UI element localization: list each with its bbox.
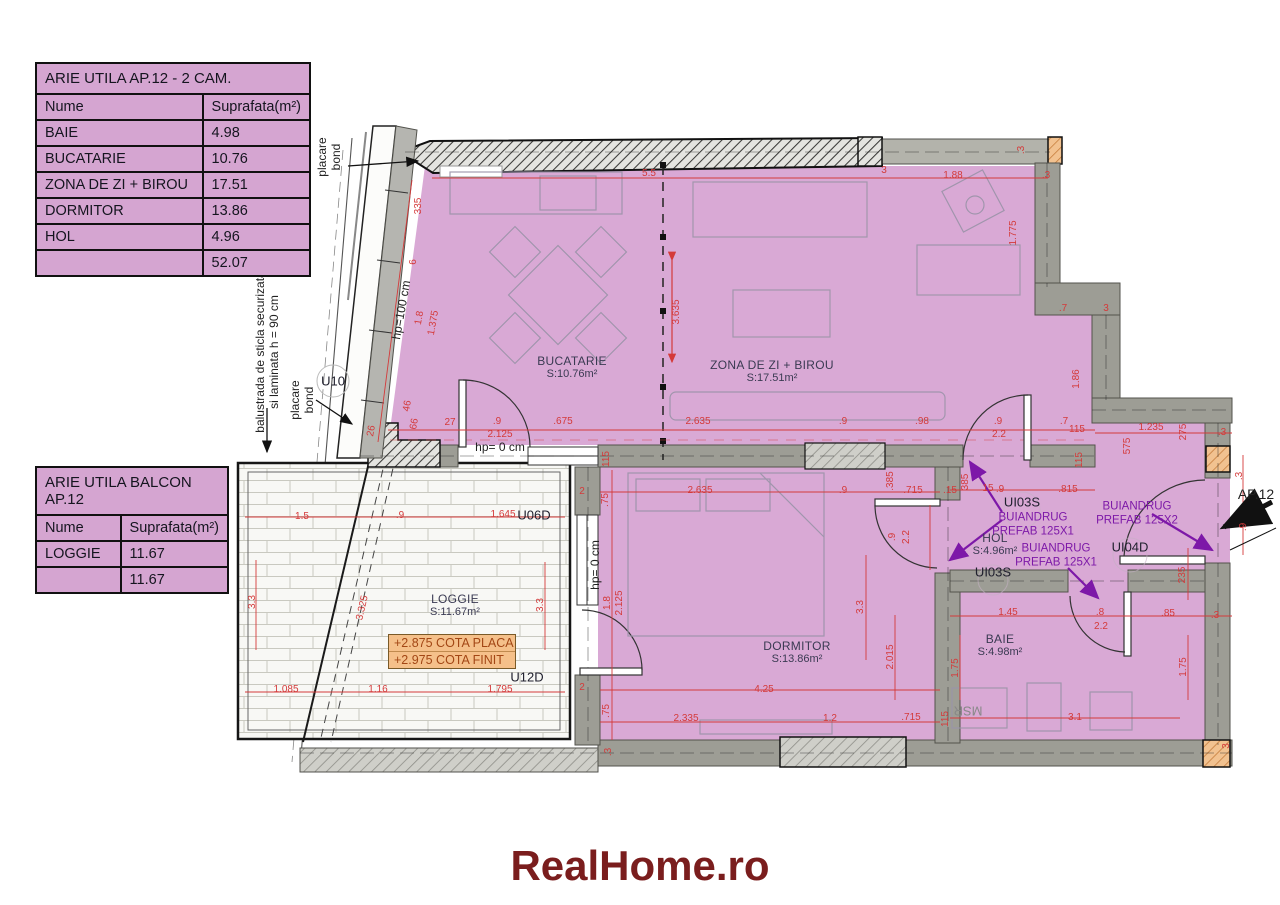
dimension-label: .9: [994, 417, 1002, 427]
hp0-kitchen-note: hp= 0 cm: [475, 441, 525, 455]
dimension-label: .98: [915, 417, 929, 427]
dimension-label: 1.75: [1179, 657, 1189, 676]
room-name: HOL: [36, 224, 203, 250]
room-name: ZONA DE ZI + BIROU: [36, 172, 203, 198]
dimension-label: 115: [602, 451, 612, 467]
table-title: ARIE UTILA BALCON AP.12: [36, 467, 228, 515]
dimension-label: .3: [1042, 171, 1050, 181]
dimension-label: .75: [601, 493, 611, 507]
dimension-label: 2.2: [1094, 622, 1108, 632]
table-row: LOGGIE11.67: [36, 541, 228, 567]
room-area: 17.51: [203, 172, 310, 198]
dimension-label: .85: [1161, 609, 1175, 619]
dimension-label: 115: [1075, 452, 1085, 468]
table-total-row: 52.07: [36, 250, 310, 276]
dimension-label: .3: [604, 748, 614, 756]
dimension-label: .15: [943, 486, 957, 496]
dimension-label: 2: [579, 683, 585, 693]
room-name: DORMITOR: [36, 198, 203, 224]
dimension-label: 2.125: [615, 590, 625, 615]
msr-label: MSR: [954, 703, 983, 718]
door-label: U12D: [510, 670, 543, 685]
lintel-note: BUIANDRUGPREFAB 125X2: [1096, 500, 1178, 529]
dimension-label: 3.635: [672, 299, 682, 324]
dimension-label: 1.775: [1009, 220, 1019, 245]
dimension-label: 1.5: [295, 512, 309, 522]
dimension-label: 115: [1069, 425, 1085, 435]
room-name: BAIE: [978, 632, 1023, 646]
dimension-label: 2.2: [902, 530, 912, 544]
empty-cell: [36, 567, 121, 593]
room-name: LOGGIE: [36, 541, 121, 567]
room-area: S:11.67m²: [430, 606, 480, 618]
table-row: DORMITOR13.86: [36, 198, 310, 224]
dimension-label: 27: [444, 418, 455, 428]
room-area: S:4.96m²: [973, 545, 1018, 557]
lintel-note: BUIANDRUGPREFAB 125X1: [1015, 542, 1097, 571]
room-area: 11.67: [121, 541, 228, 567]
dimension-label: 1.2: [823, 714, 837, 724]
column-header-area: Suprafata(m²): [121, 515, 228, 541]
room-area: 10.76: [203, 146, 310, 172]
room-name: BUCATARIE: [537, 354, 607, 368]
table-total-row: 11.67: [36, 567, 228, 593]
lintel-note: BUIANDRUGPREFAB 125X1: [992, 511, 1074, 540]
dimension-label: 385: [961, 474, 971, 491]
dimension-label: 2.635: [685, 417, 710, 427]
dimension-label: .7: [1060, 417, 1068, 427]
cota-placa: +2.875 COTA PLACA: [389, 635, 515, 652]
elevation-note: +2.875 COTA PLACA +2.975 COTA FINIT: [388, 634, 516, 669]
dimension-label: 1.88: [943, 171, 962, 181]
table-row: ZONA DE ZI + BIROU17.51: [36, 172, 310, 198]
room-name: BUCATARIE: [36, 146, 203, 172]
table-row: HOL4.96: [36, 224, 310, 250]
balustrade-note-line2: si laminata h = 90 cm: [268, 271, 282, 432]
door-label: U10: [321, 374, 345, 389]
dimension-label: 3: [1222, 743, 1232, 749]
dimension-label: 1.645: [490, 510, 515, 520]
dimension-label: 2.015: [886, 644, 896, 669]
balcony-area-table: ARIE UTILA BALCON AP.12 Nume Suprafata(m…: [35, 466, 229, 594]
dimension-label: 3.1: [1068, 713, 1082, 723]
hp0-bedroom-note: hp= 0 cm: [589, 540, 603, 590]
dimension-label: 1.085: [273, 685, 298, 695]
room-area: S:4.98m²: [978, 646, 1023, 658]
dimension-label: 3.3: [536, 598, 546, 612]
dimension-label: 1.795: [487, 685, 512, 695]
door-label: UI04D: [1112, 540, 1149, 555]
dimension-label: .3: [1235, 472, 1245, 480]
dimension-label: .9: [888, 533, 898, 541]
table-row: BUCATARIE10.76: [36, 146, 310, 172]
column-header-name: Nume: [36, 94, 203, 120]
balustrade-note-line1: balustrada de sticla securizata: [254, 271, 268, 432]
dimension-label: .815: [1058, 485, 1077, 495]
dimension-label: 235: [1178, 567, 1188, 584]
dimension-label: 3.3: [856, 600, 866, 614]
placare-bond-note-1: placare bond: [316, 129, 344, 185]
room-label: LOGGIES:11.67m²: [430, 592, 480, 618]
dimension-label: .7: [1059, 304, 1067, 314]
room-area: S:13.86m²: [763, 653, 831, 665]
room-area: S:17.51m²: [710, 372, 834, 384]
dimension-label: 275: [1179, 424, 1189, 441]
dimension-label: 5.5: [642, 169, 656, 179]
dimension-label: .385: [886, 471, 896, 490]
placare-bond-note-2: placare bond: [289, 372, 317, 428]
loggia-floor: [238, 455, 570, 742]
room-label: BAIES:4.98m²: [978, 632, 1023, 658]
room-area: 4.98: [203, 120, 310, 146]
dimension-label: 1.16: [368, 685, 387, 695]
dimension-label: 2: [579, 487, 585, 497]
room-name: LOGGIE: [430, 592, 480, 606]
door-label: UI03S: [1004, 495, 1040, 510]
dimension-label: 335: [414, 198, 424, 215]
dimension-label: .75: [602, 704, 612, 718]
realhome-logo: RealHome.ro: [0, 842, 1280, 890]
dimension-label: 2.335: [673, 714, 698, 724]
door-label: U06D: [517, 508, 550, 523]
dimension-label: .9: [396, 511, 404, 521]
dimension-label: 3.3: [248, 595, 258, 609]
dimension-label: 1.45: [998, 608, 1017, 618]
room-label: ZONA DE ZI + BIROUS:17.51m²: [710, 358, 834, 384]
cota-finit: +2.975 COTA FINIT: [389, 652, 515, 668]
dimension-label: .715: [903, 486, 922, 496]
dimension-label: .8: [1096, 608, 1104, 618]
column-header-area: Suprafata(m²): [203, 94, 310, 120]
dimension-label: 1.86: [1072, 369, 1082, 388]
room-name: DORMITOR: [763, 639, 831, 653]
table-row: BAIE4.98: [36, 120, 310, 146]
dimension-label: 15: [982, 484, 993, 494]
dimension-label: 2.2: [992, 430, 1006, 440]
dimension-label: 3: [881, 166, 887, 176]
dimension-label: .3: [1218, 428, 1226, 438]
dimension-label: 115: [941, 711, 951, 727]
dimension-label: .9: [1239, 523, 1249, 531]
total-area: 52.07: [203, 250, 310, 276]
dimension-label: .9: [493, 417, 501, 427]
dimension-label: 4.25: [754, 685, 773, 695]
dimension-label: 2.125: [487, 430, 512, 440]
table-title: ARIE UTILA AP.12 - 2 CAM.: [36, 63, 310, 94]
dimension-label: .715: [901, 713, 920, 723]
ap12-label: AP.12: [1238, 486, 1274, 502]
column-header-name: Nume: [36, 515, 121, 541]
dimension-label: 3: [1103, 304, 1109, 314]
dimension-label: .9: [839, 417, 847, 427]
room-label: DORMITORS:13.86m²: [763, 639, 831, 665]
dimension-label: 26: [366, 425, 378, 438]
dimension-label: .9: [996, 485, 1004, 495]
dimension-label: 46: [402, 400, 414, 413]
dimension-label: .675: [553, 417, 572, 427]
room-area: 13.86: [203, 198, 310, 224]
total-area: 11.67: [121, 567, 228, 593]
dimension-label: .3: [1017, 146, 1027, 154]
balustrade-note: balustrada de sticla securizata si lamin…: [254, 271, 282, 432]
door-label: UI03S: [975, 565, 1011, 580]
dimension-label: .9: [839, 486, 847, 496]
dimension-label: 1.235: [1138, 423, 1163, 433]
apartment-area-table: ARIE UTILA AP.12 - 2 CAM. Nume Suprafata…: [35, 62, 311, 277]
dimension-label: .3: [1211, 611, 1219, 621]
dimension-label: 1.8: [603, 596, 613, 610]
room-name: ZONA DE ZI + BIROU: [710, 358, 834, 372]
room-area: 4.96: [203, 224, 310, 250]
dimension-label: 575: [1123, 438, 1133, 455]
dimension-label: 66: [409, 418, 421, 431]
room-area: S:10.76m²: [537, 368, 607, 380]
empty-cell: [36, 250, 203, 276]
floorplan-page: 33561.81.3755.531.88.3.31.7753.635264666…: [0, 0, 1280, 905]
dimension-label: 2.635: [687, 486, 712, 496]
dimension-label: 6: [409, 259, 419, 265]
room-name: BAIE: [36, 120, 203, 146]
room-label: BUCATARIES:10.76m²: [537, 354, 607, 380]
dimension-label: 1.75: [951, 658, 961, 677]
